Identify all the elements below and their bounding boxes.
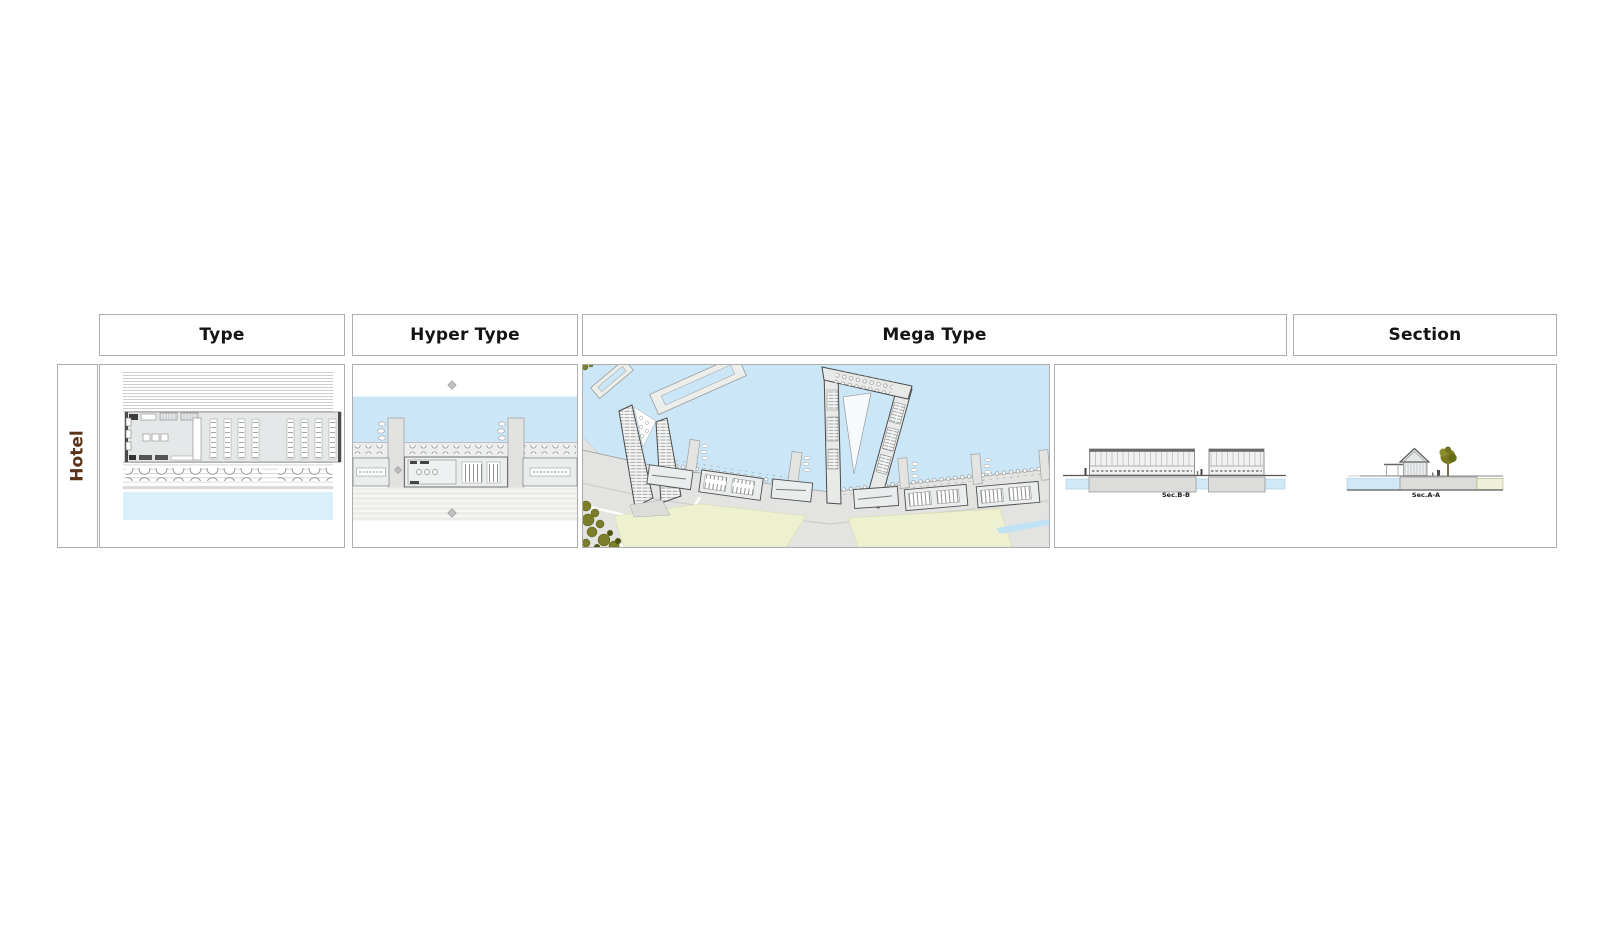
drawings-layer: Sec.B-B xyxy=(0,0,1600,930)
hyper-type-plan-drawing xyxy=(353,365,578,548)
presentation-sheet: Type Hyper Type Mega Type Section Hotel xyxy=(0,0,1600,930)
section-aa-label: Sec.A-A xyxy=(1412,491,1440,499)
section-bb-drawing: Sec.B-B xyxy=(1063,449,1286,499)
section-bb-label: Sec.B-B xyxy=(1162,491,1190,499)
section-drawings: Sec.B-B xyxy=(1055,365,1557,548)
type-plan-drawing xyxy=(100,365,345,548)
